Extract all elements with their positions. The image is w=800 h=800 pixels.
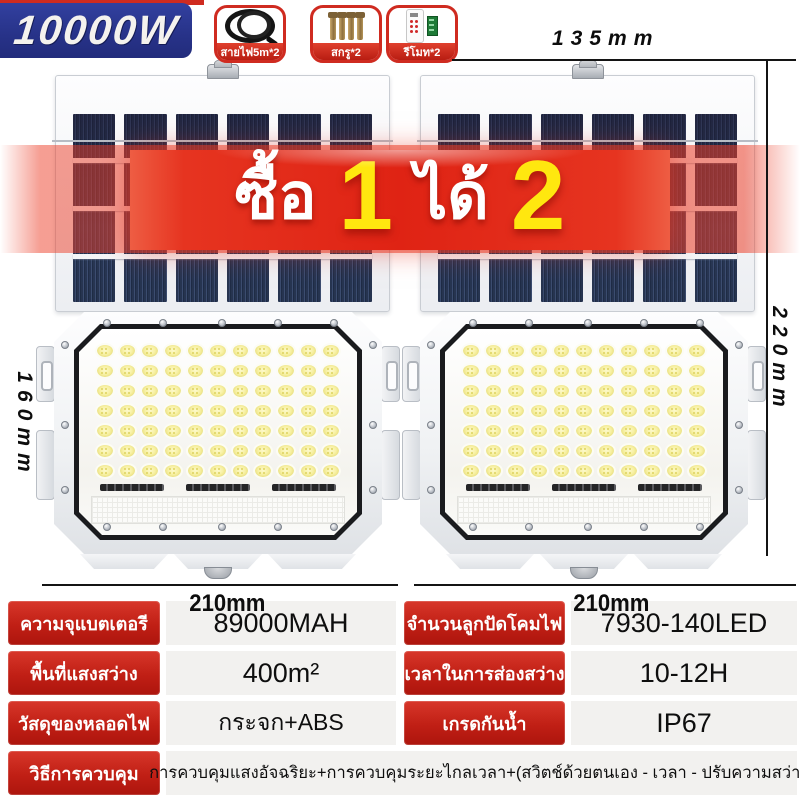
- led-bead: [118, 463, 138, 479]
- wattage-badge: 10000W: [0, 3, 192, 58]
- diffuser-strip: [91, 496, 345, 524]
- led-bead: [552, 463, 572, 479]
- led-bead: [163, 443, 183, 459]
- led-bead: [619, 343, 639, 359]
- flood-lamp-right: [402, 312, 766, 580]
- led-bead: [597, 343, 617, 359]
- led-bead: [687, 343, 707, 359]
- mount-ear: [747, 346, 766, 402]
- led-bead: [529, 363, 549, 379]
- led-bead: [461, 403, 481, 419]
- screw-icon: [61, 341, 69, 349]
- screw-icon: [427, 341, 435, 349]
- led-bead: [118, 403, 138, 419]
- led-bead: [665, 383, 685, 399]
- banner-word-buy: ซื้อ: [235, 164, 317, 236]
- lamp-width-dimension-right: 210mm: [573, 590, 649, 618]
- led-bead: [687, 443, 707, 459]
- led-bead: [665, 463, 685, 479]
- led-bead: [140, 363, 160, 379]
- led-bead: [140, 383, 160, 399]
- led-bead: [186, 423, 206, 439]
- led-bead: [208, 383, 228, 399]
- screw-icon: [274, 319, 282, 327]
- led-bead: [186, 403, 206, 419]
- led-bead: [642, 363, 662, 379]
- led-bead: [552, 383, 572, 399]
- led-bead: [574, 403, 594, 419]
- led-bead: [529, 383, 549, 399]
- led-bead: [597, 363, 617, 379]
- led-bead: [574, 363, 594, 379]
- screw-icon: [640, 523, 648, 531]
- led-bead: [208, 403, 228, 419]
- led-bead: [461, 463, 481, 479]
- screw-icon: [696, 523, 704, 531]
- led-bead: [506, 383, 526, 399]
- led-bead: [552, 443, 572, 459]
- panel-width-dimension: 135mm: [552, 27, 659, 51]
- led-bead: [95, 363, 115, 379]
- mount-ear: [381, 430, 400, 500]
- led-bead: [299, 363, 319, 379]
- led-bead: [95, 463, 115, 479]
- led-bead: [574, 443, 594, 459]
- screw-icon: [584, 523, 592, 531]
- spec-label-material: วัสดุของหลอดไฟ: [8, 701, 160, 745]
- led-bead: [253, 463, 273, 479]
- led-bead: [299, 423, 319, 439]
- led-bead: [276, 363, 296, 379]
- bottom-fin: [446, 554, 534, 569]
- spec-label-waterproof: เกรดกันน้ำ: [404, 701, 565, 745]
- led-bead: [529, 403, 549, 419]
- led-bead: [574, 463, 594, 479]
- led-bead: [619, 403, 639, 419]
- led-bead: [208, 443, 228, 459]
- led-bead: [642, 403, 662, 419]
- led-bead: [140, 463, 160, 479]
- led-bead: [276, 403, 296, 419]
- cable-icon: [217, 8, 283, 44]
- screw-icon: [369, 421, 377, 429]
- led-bead: [506, 463, 526, 479]
- lamp-width-dimension-left: 210mm: [189, 590, 265, 618]
- led-bead: [186, 443, 206, 459]
- spec-label-light-time: เวลาในการส่องสว่าง: [404, 651, 565, 695]
- panel-height-dimension: 220mm: [767, 280, 791, 440]
- led-bead: [321, 363, 341, 379]
- led-bead: [506, 363, 526, 379]
- led-bead: [597, 403, 617, 419]
- spec-label-led-count: จำนวนลูกปัดโคมไฟ: [404, 601, 565, 645]
- led-bead: [276, 463, 296, 479]
- screw-icon: [330, 523, 338, 531]
- led-bead: [253, 363, 273, 379]
- led-bead: [506, 343, 526, 359]
- led-bead: [461, 383, 481, 399]
- screw-icon: [61, 421, 69, 429]
- led-bead: [321, 443, 341, 459]
- led-bead: [118, 443, 138, 459]
- led-bead: [597, 443, 617, 459]
- led-bead: [619, 463, 639, 479]
- spec-value-material: กระจก+ABS: [166, 701, 396, 745]
- mount-ear: [381, 346, 400, 402]
- spec-label-control: วิธีการควบคุม: [8, 751, 160, 795]
- led-bead: [506, 443, 526, 459]
- lamp-body: [54, 312, 382, 554]
- mount-ear: [36, 430, 55, 500]
- bottom-fin: [634, 554, 722, 569]
- lamp-sensor-knob: [204, 567, 232, 579]
- lamp-window: [74, 324, 362, 540]
- lamp-face: [445, 329, 723, 535]
- screw-icon: [696, 319, 704, 327]
- led-bead: [529, 443, 549, 459]
- led-bead: [253, 423, 273, 439]
- lamp-sensor-knob: [570, 567, 598, 579]
- dimension-line-lamp-left: [42, 584, 398, 586]
- banner-qty-buy: 1: [339, 146, 394, 254]
- led-bead: [276, 343, 296, 359]
- screw-icon: [735, 341, 743, 349]
- screw-icon: [469, 523, 477, 531]
- led-bead: [665, 443, 685, 459]
- mount-ear: [402, 346, 421, 402]
- led-bead: [299, 463, 319, 479]
- led-bead: [118, 423, 138, 439]
- led-bead: [665, 403, 685, 419]
- led-bead: [529, 423, 549, 439]
- screw-icon: [274, 523, 282, 531]
- led-bead: [484, 363, 504, 379]
- led-bead: [574, 383, 594, 399]
- led-bead: [95, 423, 115, 439]
- vent-strips: [445, 484, 723, 491]
- led-bead: [642, 443, 662, 459]
- banner-qty-get: 2: [511, 146, 566, 254]
- led-bead: [642, 463, 662, 479]
- led-array: [95, 343, 341, 479]
- led-bead: [484, 383, 504, 399]
- led-bead: [208, 463, 228, 479]
- led-bead: [642, 383, 662, 399]
- led-bead: [574, 423, 594, 439]
- led-bead: [231, 403, 251, 419]
- led-bead: [687, 363, 707, 379]
- led-bead: [619, 363, 639, 379]
- accessory-cable: สายไฟ5m*2: [214, 5, 286, 63]
- led-bead: [506, 403, 526, 419]
- screw-icon: [159, 523, 167, 531]
- led-bead: [231, 343, 251, 359]
- spec-label-light-area: พื้นที่แสงสว่าง: [8, 651, 160, 695]
- led-bead: [642, 343, 662, 359]
- led-bead: [321, 403, 341, 419]
- led-bead: [276, 423, 296, 439]
- screw-icon: [640, 319, 648, 327]
- led-bead: [484, 423, 504, 439]
- led-bead: [95, 343, 115, 359]
- led-bead: [299, 403, 319, 419]
- led-bead: [597, 423, 617, 439]
- led-bead: [276, 443, 296, 459]
- mount-ear: [747, 430, 766, 500]
- remote-icon: [389, 8, 455, 44]
- led-bead: [140, 343, 160, 359]
- led-bead: [163, 403, 183, 419]
- lamp-height-dimension: 160mm: [12, 345, 36, 505]
- screw-icon: [330, 319, 338, 327]
- led-bead: [118, 363, 138, 379]
- led-bead: [619, 443, 639, 459]
- screw-icon: [735, 486, 743, 494]
- dimension-line-top: [452, 59, 796, 61]
- led-bead: [231, 363, 251, 379]
- led-bead: [484, 403, 504, 419]
- row-line: [73, 254, 372, 259]
- led-bead: [484, 443, 504, 459]
- led-bead: [299, 343, 319, 359]
- led-bead: [231, 383, 251, 399]
- lamp-face: [79, 329, 357, 535]
- lamp-body: [420, 312, 748, 554]
- led-bead: [253, 403, 273, 419]
- screw-icon: [369, 486, 377, 494]
- screw-icon: [735, 421, 743, 429]
- led-bead: [118, 383, 138, 399]
- spec-value-control: การควบคุมแสงอัจฉริยะ+การควบคุมระยะไกลเวล…: [166, 751, 797, 795]
- led-bead: [95, 383, 115, 399]
- promo-banner: ซื้อ 1 ได้ 2: [130, 150, 670, 250]
- led-bead: [231, 423, 251, 439]
- screw-icon: [427, 421, 435, 429]
- dimension-line-lamp-right: [414, 584, 796, 586]
- spec-value-light-time: 10-12H: [571, 651, 797, 695]
- led-bead: [231, 463, 251, 479]
- led-bead: [552, 403, 572, 419]
- led-bead: [642, 423, 662, 439]
- led-bead: [665, 423, 685, 439]
- led-bead: [597, 463, 617, 479]
- screw-icon: [427, 486, 435, 494]
- led-bead: [506, 423, 526, 439]
- panel-rod: [417, 140, 758, 142]
- led-bead: [597, 383, 617, 399]
- led-bead: [552, 343, 572, 359]
- panel-mount-knob: [572, 64, 604, 79]
- led-bead: [163, 423, 183, 439]
- led-bead: [118, 343, 138, 359]
- led-bead: [186, 463, 206, 479]
- flood-lamp-left: [36, 312, 400, 580]
- led-bead: [253, 443, 273, 459]
- led-bead: [321, 423, 341, 439]
- led-bead: [321, 463, 341, 479]
- product-promo-image: 10000W สายไฟ5m*2 สกรู*2 รีโมท*2 135mm 22…: [0, 0, 800, 800]
- led-bead: [140, 423, 160, 439]
- spec-label-battery: ความจุแบตเตอรี: [8, 601, 160, 645]
- led-bead: [163, 383, 183, 399]
- banner-word-get: ได้: [415, 164, 489, 236]
- led-bead: [163, 363, 183, 379]
- screws-icon: [313, 8, 379, 44]
- led-array: [461, 343, 707, 479]
- led-bead: [321, 383, 341, 399]
- led-bead: [186, 343, 206, 359]
- led-bead: [299, 383, 319, 399]
- led-bead: [163, 343, 183, 359]
- led-bead: [484, 343, 504, 359]
- led-bead: [687, 463, 707, 479]
- led-bead: [208, 343, 228, 359]
- led-bead: [208, 423, 228, 439]
- led-bead: [163, 463, 183, 479]
- led-bead: [95, 443, 115, 459]
- led-bead: [665, 363, 685, 379]
- screw-icon: [218, 523, 226, 531]
- led-bead: [253, 343, 273, 359]
- led-bead: [95, 403, 115, 419]
- led-bead: [619, 423, 639, 439]
- led-bead: [574, 343, 594, 359]
- lamp-window: [440, 324, 728, 540]
- mount-ear: [402, 430, 421, 500]
- vent-strips: [79, 484, 357, 491]
- led-bead: [461, 363, 481, 379]
- spec-value-light-area: 400m²: [166, 651, 396, 695]
- led-bead: [687, 403, 707, 419]
- led-bead: [140, 403, 160, 419]
- bottom-fin: [268, 554, 356, 569]
- led-bead: [186, 363, 206, 379]
- led-bead: [665, 343, 685, 359]
- accessory-screws-label: สกรู*2: [313, 43, 379, 60]
- diffuser-strip: [457, 496, 711, 524]
- mount-ear: [36, 346, 55, 402]
- screw-icon: [103, 523, 111, 531]
- led-bead: [529, 343, 549, 359]
- led-bead: [529, 463, 549, 479]
- led-bead: [140, 443, 160, 459]
- bottom-fin: [80, 554, 168, 569]
- led-bead: [186, 383, 206, 399]
- led-bead: [276, 383, 296, 399]
- accessory-cable-label: สายไฟ5m*2: [217, 43, 283, 60]
- wattage-text: 10000W: [11, 7, 181, 54]
- row-line: [438, 254, 737, 259]
- accessory-screws: สกรู*2: [310, 5, 382, 63]
- led-bead: [461, 423, 481, 439]
- led-bead: [552, 423, 572, 439]
- spec-value-waterproof: IP67: [571, 701, 797, 745]
- led-bead: [687, 423, 707, 439]
- led-bead: [461, 443, 481, 459]
- screw-icon: [61, 486, 69, 494]
- led-bead: [461, 343, 481, 359]
- led-bead: [253, 383, 273, 399]
- accessory-remote: รีโมท*2: [386, 5, 458, 63]
- led-bead: [687, 383, 707, 399]
- led-bead: [552, 363, 572, 379]
- led-bead: [619, 383, 639, 399]
- led-bead: [299, 443, 319, 459]
- screw-icon: [369, 341, 377, 349]
- accessory-remote-label: รีโมท*2: [389, 43, 455, 60]
- led-bead: [321, 343, 341, 359]
- panel-mount-knob: [207, 64, 239, 79]
- led-bead: [484, 463, 504, 479]
- screw-icon: [525, 523, 533, 531]
- led-bead: [231, 443, 251, 459]
- promo-banner-text: ซื้อ 1 ได้ 2: [130, 150, 670, 250]
- led-bead: [208, 363, 228, 379]
